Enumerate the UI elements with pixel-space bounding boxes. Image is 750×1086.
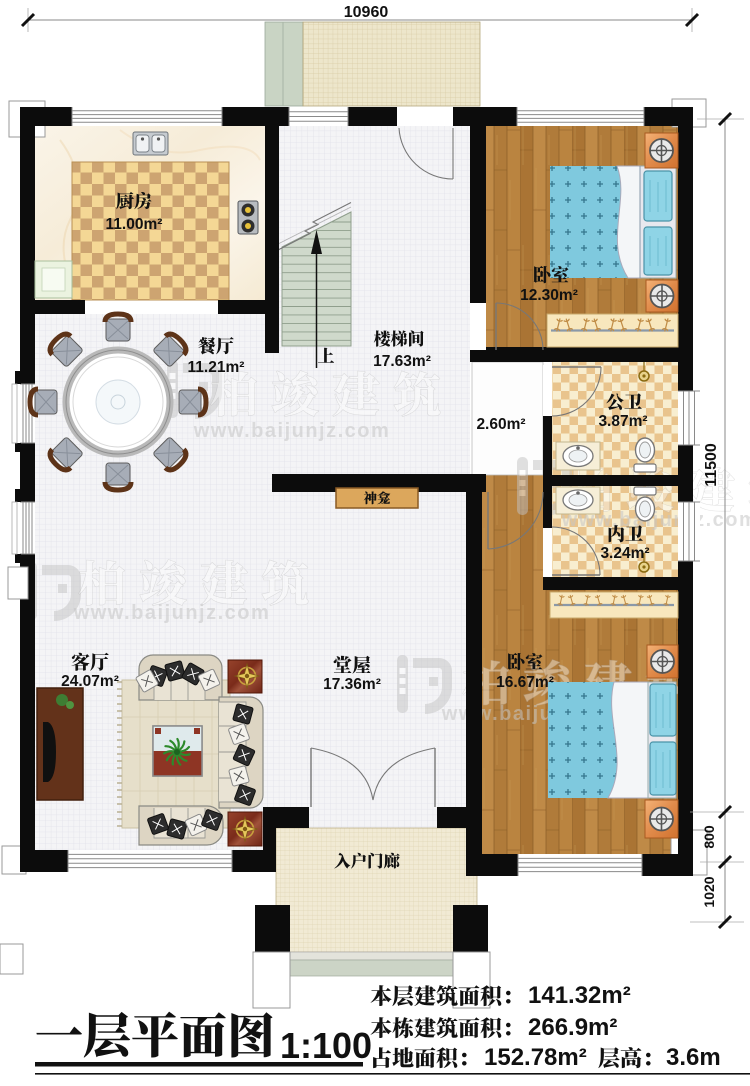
svg-text:24.07m²: 24.07m²: [61, 673, 119, 690]
svg-text:141.32m²: 141.32m²: [528, 982, 631, 1009]
svg-text:3.24m²: 3.24m²: [600, 545, 649, 562]
svg-text:3.87m²: 3.87m²: [598, 413, 647, 430]
svg-text:266.9m²: 266.9m²: [528, 1014, 617, 1041]
svg-text:11.00m²: 11.00m²: [106, 216, 163, 233]
svg-text:800: 800: [701, 825, 717, 849]
svg-text:152.78m²: 152.78m²: [484, 1044, 587, 1071]
svg-text:11500: 11500: [703, 443, 720, 487]
svg-text:3.6m: 3.6m: [666, 1044, 721, 1071]
svg-text:17.63m²: 17.63m²: [373, 353, 431, 370]
svg-text:1020: 1020: [701, 876, 717, 907]
svg-text:www.baijunjz.com: www.baijunjz.com: [73, 602, 271, 624]
svg-text:12.30m²: 12.30m²: [520, 287, 578, 304]
svg-text:17.36m²: 17.36m²: [323, 676, 381, 693]
svg-text:2.60m²: 2.60m²: [476, 416, 525, 433]
svg-text:16.67m²: 16.67m²: [496, 674, 554, 691]
svg-text:1:100: 1:100: [280, 1025, 372, 1066]
svg-text:www.baijunjz.com: www.baijunjz.com: [193, 420, 391, 442]
svg-text:10960: 10960: [344, 4, 389, 21]
svg-text:11.21m²: 11.21m²: [188, 359, 245, 376]
